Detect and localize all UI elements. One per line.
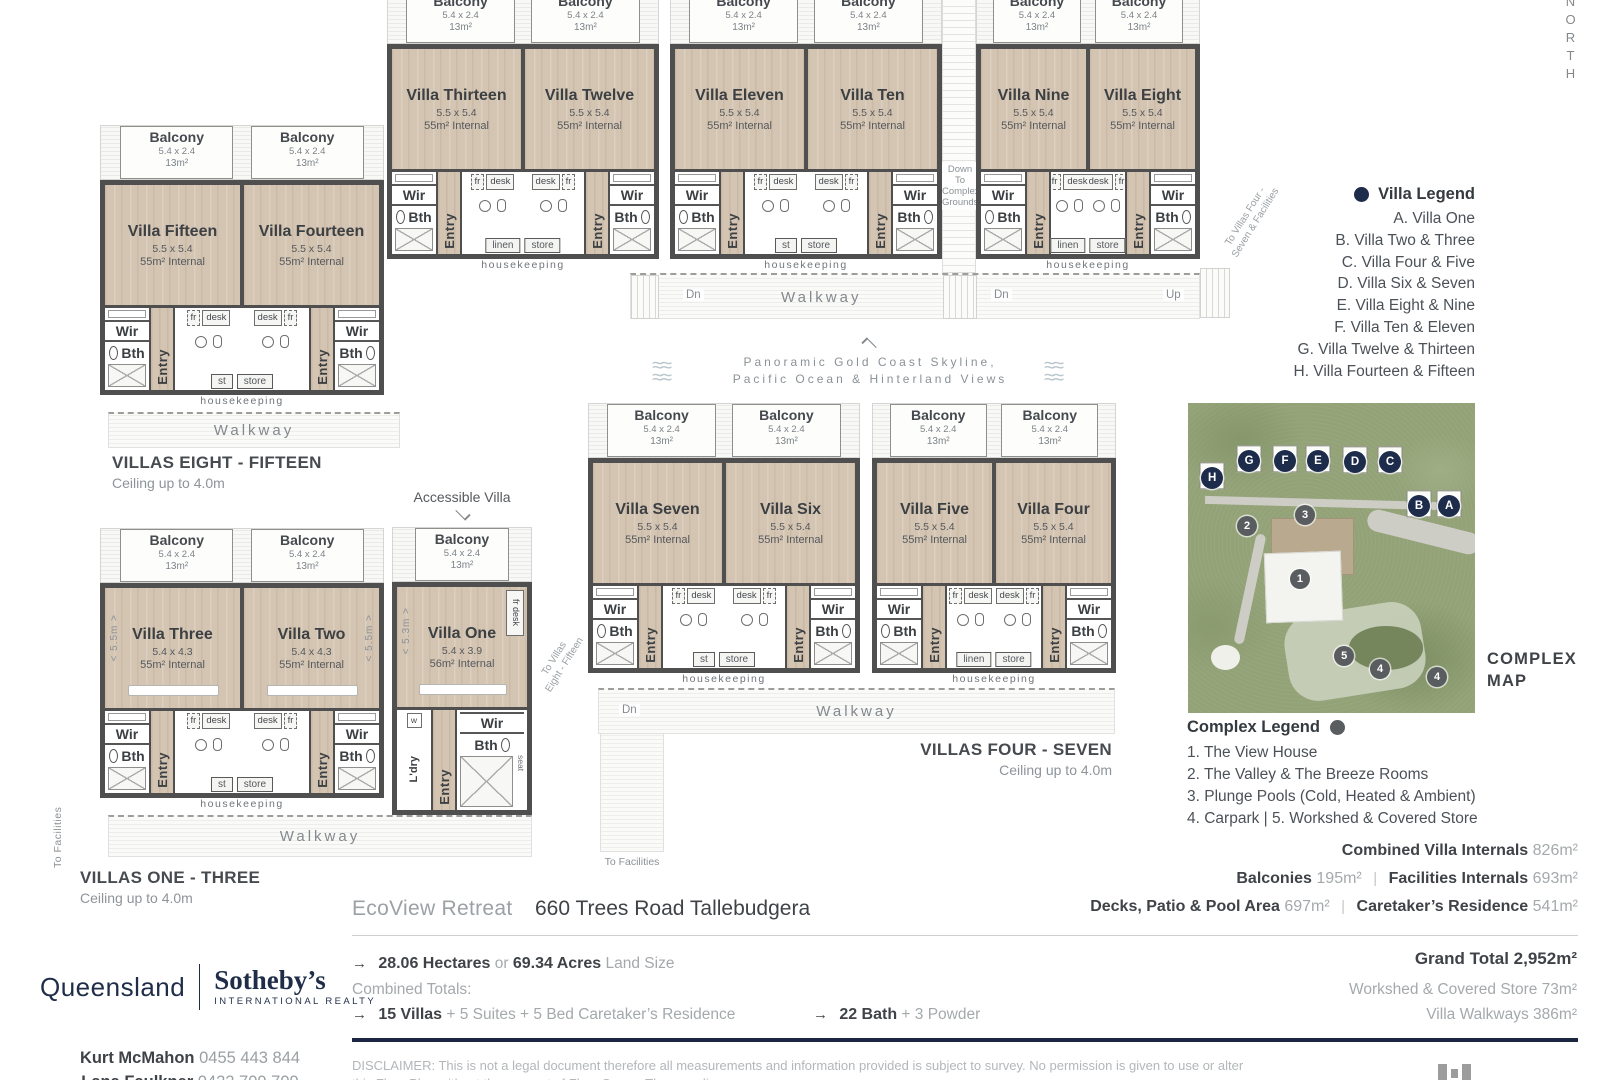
section-label: VILLAS EIGHT - FIFTEEN Ceiling up to 4.0… bbox=[112, 453, 412, 491]
villa-name: Villa Three bbox=[132, 626, 213, 644]
shower-icon bbox=[338, 767, 376, 790]
balcony-left: Balcony 5.4 x 2.4 13m² bbox=[607, 404, 715, 457]
wir-label: Wir bbox=[893, 184, 937, 206]
desk-label: desk bbox=[202, 713, 230, 729]
villa-pair-lower: Wir Bth Entry fr desk bbox=[675, 169, 937, 254]
map-path bbox=[1234, 533, 1267, 644]
villa-name: Villa Five bbox=[900, 501, 969, 519]
basin-icon bbox=[280, 738, 289, 751]
window bbox=[108, 713, 146, 721]
disclaimer-line-1: DISCLAIMER: This is not a legal document… bbox=[352, 1058, 1472, 1073]
bth-label: Bth bbox=[897, 209, 920, 225]
complex-legend-item: 1. The View House bbox=[1187, 742, 1533, 764]
basin-icon bbox=[280, 335, 289, 348]
villas-count: 15 Villas bbox=[378, 1006, 442, 1023]
fridge-label: fr bbox=[754, 174, 768, 190]
shower-icon bbox=[596, 642, 634, 665]
sink-icon bbox=[957, 614, 969, 626]
laundry-label: L'dry bbox=[408, 756, 420, 782]
basin-icon bbox=[975, 613, 984, 626]
stat-label: Decks, Patio & Pool Area bbox=[1090, 898, 1280, 915]
dimension-label: < 5.3m > bbox=[401, 607, 412, 654]
villa-dims: 5.4 x 4.3 bbox=[291, 646, 331, 658]
entry-label: Entry bbox=[725, 213, 740, 249]
wir-label: Wir bbox=[335, 320, 379, 342]
entry-corridor: Entry bbox=[1041, 586, 1067, 668]
balcony-area: 13m² bbox=[416, 560, 507, 571]
villa-dims: 5.5 x 5.4 bbox=[436, 107, 476, 119]
balcony-dims: 5.4 x 2.4 bbox=[815, 10, 921, 21]
window bbox=[814, 588, 852, 596]
balcony-label: Balcony bbox=[608, 407, 714, 423]
window bbox=[596, 588, 634, 596]
villa-pair-body: Villa Three 5.4 x 4.3 55m² Internal Vill… bbox=[100, 583, 384, 798]
map-facility-number: 1 bbox=[1290, 569, 1310, 589]
balcony-right: Balcony 5.4 x 2.4 13m² bbox=[1095, 0, 1183, 43]
wir-label: Wir bbox=[811, 598, 855, 620]
villa-name: Villa One bbox=[428, 625, 496, 643]
balcony-area: 13m² bbox=[994, 22, 1080, 33]
entry-label: Entry bbox=[155, 752, 170, 788]
walkway-to-facilities bbox=[600, 734, 664, 852]
legend-dot-icon bbox=[1330, 720, 1345, 735]
balcony-dims: 5.4 x 2.4 bbox=[733, 424, 839, 435]
stairs bbox=[943, 275, 977, 319]
store-right-label: store bbox=[524, 238, 560, 253]
toilet-icon bbox=[924, 210, 933, 224]
villa-dims: 5.5 x 5.4 bbox=[569, 107, 609, 119]
divider bbox=[352, 935, 1578, 936]
balcony-area: 13m² bbox=[733, 436, 839, 447]
map-villa-letter: D bbox=[1344, 451, 1366, 473]
or-label: or bbox=[495, 955, 509, 972]
wir-label: Wir bbox=[335, 723, 379, 745]
villa-pair-body: Villa Eleven 5.5 x 5.4 55m² Internal Vil… bbox=[670, 44, 942, 259]
balcony-right: Balcony 5.4 x 2.4 13m² bbox=[1001, 404, 1098, 457]
villa-name: Villa Eight bbox=[1104, 87, 1181, 105]
villa-internal-area: 55m² Internal bbox=[557, 120, 622, 132]
area-stats: Combined Villa Internals 826m² Balconies… bbox=[1000, 837, 1578, 921]
villa-dims: 5.5 x 5.4 bbox=[719, 107, 759, 119]
villa-one-lower: w L'dry Entry Wir Bth seat bbox=[397, 707, 527, 810]
toilet-icon bbox=[1098, 624, 1107, 638]
entry-corridor: Entry bbox=[431, 710, 457, 810]
entry-label: Entry bbox=[590, 213, 605, 249]
balcony-area: 13m² bbox=[407, 22, 513, 33]
entry-label: Entry bbox=[437, 769, 452, 805]
fridge-label: fr bbox=[1115, 174, 1125, 190]
balcony-left: Balcony 5.4 x 2.4 13m² bbox=[120, 529, 233, 582]
stat-label: Caretaker’s Residence bbox=[1357, 898, 1529, 915]
shower-icon bbox=[896, 228, 934, 251]
balcony-dims: 5.4 x 2.4 bbox=[690, 10, 796, 21]
agency-brand: Sotheby’s bbox=[214, 967, 376, 993]
villa-room: Villa One 5.4 x 3.9 56m² Internal fr des… bbox=[397, 587, 527, 707]
map-facility-number: 2 bbox=[1237, 516, 1257, 536]
wir-label: Wir bbox=[877, 598, 921, 620]
window bbox=[338, 310, 376, 318]
entry-label: Entry bbox=[315, 349, 330, 385]
balcony-area: 13m² bbox=[690, 22, 796, 33]
balcony-area: 13m² bbox=[121, 561, 232, 572]
section-label: VILLAS ONE - THREE Ceiling up to 4.0m bbox=[80, 868, 380, 906]
basin-icon bbox=[497, 199, 506, 212]
villa-internal-area: 55m² Internal bbox=[758, 534, 823, 546]
entry-label: Entry bbox=[927, 627, 942, 663]
bth-label: Bth bbox=[339, 748, 362, 764]
arrow-icon: → bbox=[813, 1006, 835, 1023]
villa-name: Villa Ten bbox=[840, 87, 904, 105]
balcony-label: Balcony bbox=[1096, 0, 1182, 9]
shower-icon bbox=[880, 642, 918, 665]
map-villa-letter: H bbox=[1201, 467, 1223, 489]
agent-phone: 0455 443 844 bbox=[199, 1049, 300, 1067]
basin-icon bbox=[558, 199, 567, 212]
villa-dims: 5.5 x 5.4 bbox=[1122, 107, 1162, 119]
balcony-label: Balcony bbox=[416, 531, 507, 547]
agency-divider bbox=[199, 964, 200, 1010]
grand-total: Grand Total 2,952m² bbox=[1415, 949, 1577, 969]
villas-total-line: → 15 Villas + 5 Suites + 5 Bed Caretaker… bbox=[352, 1006, 735, 1024]
separator: | bbox=[1366, 870, 1384, 887]
toilet-icon bbox=[881, 624, 890, 638]
villa-dims: 5.5 x 5.4 bbox=[291, 243, 331, 255]
housekeeping-label: housekeeping bbox=[100, 395, 384, 408]
balcony-label: Balcony bbox=[815, 0, 921, 9]
entry-corridor: Entry bbox=[436, 172, 462, 254]
balcony-row: Balcony 5.4 x 2.4 13m² Balcony 5.4 x 2.4… bbox=[588, 403, 860, 458]
villa-name: Villa Fifteen bbox=[128, 223, 218, 241]
shower-icon bbox=[338, 364, 376, 387]
villa-name: Villa Twelve bbox=[545, 87, 634, 105]
balcony-dims: 5.4 x 2.4 bbox=[121, 549, 232, 560]
villa-dims: 5.5 x 5.4 bbox=[637, 521, 677, 533]
wave-icon: ≈≈ bbox=[1044, 372, 1061, 383]
entry-corridor: Entry bbox=[719, 172, 745, 254]
villa-name: Villa Eleven bbox=[695, 87, 784, 105]
villa-dims: 5.4 x 4.3 bbox=[152, 646, 192, 658]
wave-icon: ≈≈ bbox=[652, 372, 669, 383]
toilet-icon bbox=[396, 210, 405, 224]
entry-label: Entry bbox=[315, 752, 330, 788]
sink-icon bbox=[262, 739, 274, 751]
agency-region: Queensland bbox=[40, 972, 185, 1003]
balcony-area: 13m² bbox=[252, 158, 363, 169]
housekeeping-label: housekeeping bbox=[670, 259, 942, 272]
villa-internal-area: 55m² Internal bbox=[279, 256, 344, 268]
entry-corridor: Entry bbox=[867, 172, 893, 254]
villa-room-right: Villa Two 5.4 x 4.3 55m² Internal bbox=[240, 588, 379, 708]
project-name: EcoView Retreat bbox=[352, 897, 513, 921]
villa-internal-area: 55m² Internal bbox=[707, 120, 772, 132]
balcony-area: 13m² bbox=[532, 22, 638, 33]
balcony-row: Balcony 5.4 x 2.4 13m² Balcony 5.4 x 2.4… bbox=[976, 0, 1200, 44]
window bbox=[880, 588, 918, 596]
fridge-label: fr bbox=[187, 713, 201, 729]
chevron-up-icon bbox=[861, 337, 876, 352]
sink-icon bbox=[195, 739, 207, 751]
balcony-area: 13m² bbox=[121, 158, 232, 169]
basin-icon bbox=[213, 738, 222, 751]
walkway-villas-8-15: Walkway bbox=[108, 412, 400, 448]
toilet-icon bbox=[842, 624, 851, 638]
balcony-right: Balcony 5.4 x 2.4 13m² bbox=[531, 0, 639, 43]
complex-legend-item: 2. The Valley & The Breeze Rooms bbox=[1187, 764, 1533, 786]
villa-name: Villa Four bbox=[1017, 501, 1090, 519]
balcony-right: Balcony 5.4 x 2.4 13m² bbox=[732, 404, 840, 457]
villa-pair: Balcony 5.4 x 2.4 13m² Balcony 5.4 x 2.4… bbox=[387, 0, 659, 272]
villa-dims: 5.5 x 5.4 bbox=[770, 521, 810, 533]
villa-room-right: Villa Four 5.5 x 5.4 55m² Internal bbox=[992, 463, 1111, 583]
sink-icon bbox=[762, 200, 774, 212]
store-right-label: store bbox=[719, 652, 755, 667]
washer-label: w bbox=[407, 713, 422, 728]
map-facility-number: 4 bbox=[1427, 667, 1447, 687]
balcony-label: Balcony bbox=[891, 407, 986, 423]
map-facility-number: 4 bbox=[1370, 659, 1390, 679]
villa-legend-title: Villa Legend bbox=[1378, 185, 1475, 204]
villa-legend-item: B. Villa Two & Three bbox=[1150, 230, 1475, 252]
desk-label: desk bbox=[1088, 174, 1113, 190]
complex-map-title: COMPLEX MAP bbox=[1487, 648, 1577, 692]
bath-total-line: → 22 Bath + 3 Powder bbox=[813, 1006, 980, 1024]
shower-icon bbox=[984, 228, 1022, 251]
balcony-left: Balcony 5.4 x 2.4 13m² bbox=[689, 0, 797, 43]
balcony-left: Balcony 5.4 x 2.4 13m² bbox=[890, 404, 987, 457]
map-villa-letter: B bbox=[1408, 495, 1430, 517]
basin-icon bbox=[1022, 613, 1031, 626]
villa-legend: Villa Legend A. Villa One B. Villa Two &… bbox=[1150, 185, 1475, 382]
entry-label: Entry bbox=[155, 349, 170, 385]
shower-icon bbox=[1070, 642, 1108, 665]
villa-pair: Balcony 5.4 x 2.4 13m² Balcony 5.4 x 2.4… bbox=[100, 125, 384, 408]
villa-room-right: Villa Twelve 5.5 x 5.4 55m² Internal bbox=[521, 49, 654, 169]
land-acres: 69.34 Acres bbox=[513, 955, 601, 972]
balcony-row: Balcony 5.4 x 2.4 13m² Balcony 5.4 x 2.4… bbox=[670, 0, 942, 44]
balcony-area: 13m² bbox=[815, 22, 921, 33]
fridge-label: fr bbox=[949, 588, 963, 604]
bath-count: 22 Bath bbox=[839, 1006, 897, 1023]
villa-room-right: Villa Ten 5.5 x 5.4 55m² Internal bbox=[804, 49, 937, 169]
balcony-dims: 5.4 x 2.4 bbox=[252, 549, 363, 560]
laundry: L'dry bbox=[408, 728, 420, 810]
toilet-icon bbox=[679, 210, 688, 224]
balcony-label: Balcony bbox=[121, 129, 232, 145]
walkway-label: Walkway bbox=[214, 422, 294, 439]
complex-legend: Complex Legend 1. The View House 2. The … bbox=[1187, 718, 1533, 830]
balcony-area: 13m² bbox=[1096, 22, 1182, 33]
window bbox=[896, 174, 934, 182]
map-facility-number: 3 bbox=[1295, 505, 1315, 525]
fridge-label: fr bbox=[763, 588, 777, 604]
balcony-row: Balcony 5.4 x 2.4 13m² Balcony 5.4 x 2.4… bbox=[872, 403, 1116, 458]
fridge-label: fr bbox=[1026, 588, 1040, 604]
housekeeping-label: housekeeping bbox=[387, 259, 659, 272]
project-address: 660 Trees Road Tallebudgera bbox=[535, 897, 810, 921]
sink-icon bbox=[1004, 614, 1016, 626]
balcony-area: 13m² bbox=[1002, 436, 1097, 447]
window bbox=[108, 310, 146, 318]
sink-icon bbox=[823, 200, 835, 212]
bth-label: Bth bbox=[609, 623, 632, 639]
balcony-dims: 5.4 x 2.4 bbox=[1002, 424, 1097, 435]
land-hectares: 28.06 Hectares bbox=[378, 955, 490, 972]
agency-logo: Queensland Sotheby’s INTERNATIONAL REALT… bbox=[40, 964, 376, 1010]
villa-legend-item: G. Villa Twelve & Thirteen bbox=[1150, 339, 1475, 361]
stairs-down-complex bbox=[942, 0, 976, 273]
villa-legend-item: H. Villa Fourteen & Fifteen bbox=[1150, 361, 1475, 383]
map-villa-letter: C bbox=[1379, 451, 1401, 473]
villa-pair-lower: Wir Bth Entry fr desk bbox=[105, 708, 379, 793]
fridge-label: fr bbox=[562, 174, 576, 190]
complex-legend-item: 4. Carpark | 5. Workshed & Covered Store bbox=[1187, 808, 1533, 830]
floor-plan-canvas: Walkway Walkway Dn Dn Up Walkway Dn Walk… bbox=[0, 0, 1620, 1080]
basin-icon bbox=[841, 199, 850, 212]
desk-label: desk bbox=[254, 310, 282, 326]
villa-room-left: Villa Three 5.4 x 4.3 55m² Internal bbox=[105, 588, 240, 708]
entry-corridor: Entry bbox=[785, 586, 811, 668]
villa-name: Villa Seven bbox=[615, 501, 699, 519]
villa-name: Villa Two bbox=[278, 626, 346, 644]
stat-label: Balconies bbox=[1236, 870, 1312, 887]
chevron-down-icon bbox=[455, 505, 470, 520]
dn-label: Dn bbox=[683, 289, 704, 301]
map-facility-number: 5 bbox=[1334, 646, 1354, 666]
villa-pair-lower: Wir Bth Entry fr desk bbox=[392, 169, 654, 254]
villa-dims: 5.5 x 5.4 bbox=[1013, 107, 1053, 119]
rule bbox=[352, 1038, 1578, 1042]
villa-room-left: Villa Five 5.5 x 5.4 55m² Internal bbox=[877, 463, 992, 583]
stat-value: 697m² bbox=[1284, 898, 1329, 915]
sink-icon bbox=[540, 200, 552, 212]
bath-detail: + 3 Powder bbox=[901, 1006, 980, 1023]
balcony-label: Balcony bbox=[252, 532, 363, 548]
balcony-left: Balcony 5.4 x 2.4 13m² bbox=[406, 0, 514, 43]
store-right-label: store bbox=[801, 238, 837, 253]
wir-label: Wir bbox=[1067, 598, 1111, 620]
balcony-dims: 5.4 x 2.4 bbox=[994, 10, 1080, 21]
desk-label: desk bbox=[687, 588, 715, 604]
basin-icon bbox=[759, 613, 768, 626]
villa-internal-area: 55m² Internal bbox=[1001, 120, 1066, 132]
basin-icon bbox=[213, 335, 222, 348]
sink-icon bbox=[1093, 200, 1105, 212]
shower-icon bbox=[395, 228, 433, 251]
villa-pair-lower: Wir Bth Entry fr desk bbox=[877, 583, 1111, 668]
agency-sub-brand: INTERNATIONAL REALTY bbox=[214, 996, 376, 1007]
sink-icon bbox=[1056, 200, 1068, 212]
bth-label: Bth bbox=[121, 345, 144, 361]
land-size-label: Land Size bbox=[606, 955, 675, 972]
villa-internal-area: 55m² Internal bbox=[1110, 120, 1175, 132]
stat-label: Facilities Internals bbox=[1389, 870, 1529, 887]
entry-label: Entry bbox=[442, 213, 457, 249]
section-subtitle: Ceiling up to 4.0m bbox=[872, 762, 1112, 778]
villa-room-right: Villa Six 5.5 x 5.4 55m² Internal bbox=[722, 463, 855, 583]
entry-label: Entry bbox=[873, 213, 888, 249]
bth-label: Bth bbox=[339, 345, 362, 361]
bth-label: Bth bbox=[691, 209, 714, 225]
balcony-label: Balcony bbox=[690, 0, 796, 9]
bth-label: Bth bbox=[815, 623, 838, 639]
agent-phone: 0422 709 709 bbox=[198, 1073, 299, 1080]
villa-pair-body: Villa Fifteen 5.5 x 5.4 55m² Internal Vi… bbox=[100, 180, 384, 395]
villa-legend-item: F. Villa Ten & Eleven bbox=[1150, 317, 1475, 339]
map-villa-letter: F bbox=[1274, 450, 1296, 472]
villa-name: Villa Thirteen bbox=[406, 87, 506, 105]
villa-internal-area: 55m² Internal bbox=[140, 256, 205, 268]
fridge-label: fr bbox=[284, 310, 298, 326]
sink-icon bbox=[195, 336, 207, 348]
store-left-label: st bbox=[693, 652, 715, 667]
balcony-dims: 5.4 x 2.4 bbox=[252, 146, 363, 157]
villa-room-right: Villa Fourteen 5.5 x 5.4 55m² Internal bbox=[240, 185, 379, 305]
balcony-label: Balcony bbox=[994, 0, 1080, 9]
section-subtitle: Ceiling up to 4.0m bbox=[112, 475, 412, 491]
stat-value: 541m² bbox=[1533, 898, 1578, 915]
land-size-line: → 28.06 Hectares or 69.34 Acres Land Siz… bbox=[352, 955, 674, 973]
balcony-right: Balcony 5.4 x 2.4 13m² bbox=[251, 126, 364, 179]
stairs bbox=[631, 275, 659, 319]
floorscans-logo bbox=[1438, 1064, 1471, 1080]
fridge-label: fr bbox=[471, 174, 485, 190]
desk-label: desk bbox=[996, 588, 1024, 604]
basin-icon bbox=[780, 199, 789, 212]
walkway-label: Walkway bbox=[280, 828, 360, 845]
window bbox=[338, 713, 376, 721]
panoramic-view-note: Panoramic Gold Coast Skyline, Pacific Oc… bbox=[700, 354, 1040, 388]
agent-name: Lana Faulkner bbox=[81, 1073, 193, 1080]
villa-internal-area: 55m² Internal bbox=[840, 120, 905, 132]
entry-label: Entry bbox=[1131, 213, 1146, 249]
bed bbox=[419, 684, 507, 695]
balcony-left: Balcony 5.4 x 2.4 13m² bbox=[120, 126, 233, 179]
villa-room-left: Villa Seven 5.5 x 5.4 55m² Internal bbox=[593, 463, 722, 583]
window bbox=[395, 174, 433, 182]
entry-corridor: Entry bbox=[1025, 172, 1051, 254]
store-right-label: store bbox=[237, 374, 273, 389]
desk-label: desk bbox=[486, 174, 514, 190]
villa-dims: 5.5 x 5.4 bbox=[152, 243, 192, 255]
shower-icon bbox=[108, 364, 146, 387]
toilet-icon bbox=[501, 738, 510, 752]
fridge-desk-label: fr desk bbox=[506, 590, 524, 636]
desk-label: desk bbox=[1063, 174, 1088, 190]
wir-label: Wir bbox=[392, 184, 436, 206]
villa-room-right: Villa Eight 5.5 x 5.4 55m² Internal bbox=[1086, 49, 1195, 169]
balcony-label: Balcony bbox=[252, 129, 363, 145]
balcony-area: 13m² bbox=[252, 561, 363, 572]
villa-dims: 5.5 x 5.4 bbox=[852, 107, 892, 119]
to-facilities-label-left: To Facilities bbox=[52, 768, 64, 868]
entry-corridor: Entry bbox=[149, 308, 175, 390]
balcony-label: Balcony bbox=[733, 407, 839, 423]
wir-label: Wir bbox=[675, 184, 719, 206]
store-left-label: st bbox=[211, 777, 233, 792]
villa-legend-item: D. Villa Six & Seven bbox=[1150, 273, 1475, 295]
toilet-icon bbox=[109, 346, 118, 360]
entry-corridor: Entry bbox=[309, 308, 335, 390]
villa-internal-area: 55m² Internal bbox=[424, 120, 489, 132]
section-subtitle: Ceiling up to 4.0m bbox=[80, 890, 380, 906]
legend-dot-icon bbox=[1354, 187, 1369, 202]
sink-icon bbox=[680, 614, 692, 626]
balcony-area: 13m² bbox=[608, 436, 714, 447]
stats-line-2: Balconies 195m² | Facilities Internals 6… bbox=[1000, 865, 1578, 893]
store-right-label: store bbox=[1089, 238, 1125, 253]
villa-internal-area: 55m² Internal bbox=[140, 659, 205, 671]
bed bbox=[267, 685, 358, 696]
